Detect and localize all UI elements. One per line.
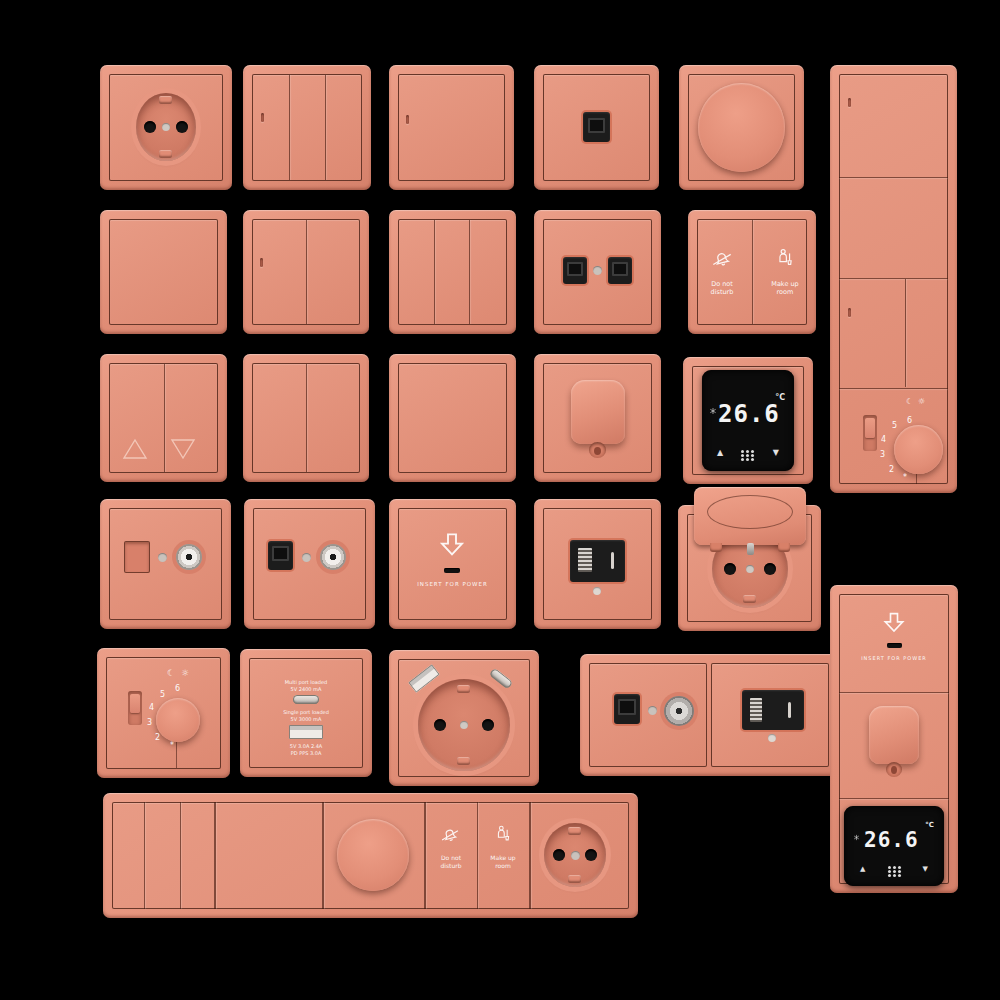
moon-icon: ☾ (167, 668, 175, 678)
bell-crossed-icon (711, 248, 733, 270)
tile-usb-outlet (534, 499, 661, 629)
tile-usb-charger: Multi port loaded5V 2400 mA Single port … (240, 649, 372, 777)
lid-hinge (778, 543, 790, 552)
schuko-socket (136, 93, 196, 161)
pin-hole (482, 719, 494, 731)
usb-a-port (578, 548, 592, 572)
center-dot (746, 565, 754, 573)
rj45-module (608, 257, 632, 284)
menu-dots-icon (888, 866, 891, 869)
rocker-face (398, 219, 507, 325)
rocker-divider (905, 279, 906, 387)
mode-slider-knob (865, 418, 875, 438)
thermostat-display: 26.6 °C ▲ ▼ (702, 370, 794, 471)
charger-text-top: Multi port loaded5V 2400 mA (240, 679, 372, 692)
rj45-module (614, 694, 640, 724)
dial-number: 2 (155, 733, 160, 742)
tile-rocker-2gang-indicator (243, 210, 369, 334)
tile-dimmer (679, 65, 804, 190)
insert-for-power-label: INSERT FOR POWER (389, 581, 516, 587)
cable-outlet-hole (886, 762, 902, 777)
rocker-face (252, 219, 360, 325)
cable-outlet-flap (869, 706, 919, 764)
blind-up-icon (122, 438, 148, 460)
housekeeping-icon (493, 824, 513, 844)
dial-number: 2 (889, 465, 894, 474)
rocker-divider (325, 75, 326, 180)
dial-pointer-line (176, 742, 177, 768)
rocker-face (398, 74, 505, 181)
usb-module (742, 690, 804, 730)
tile-keycard-switch: INSERT FOR POWER (389, 499, 516, 629)
housekeeping-icon (774, 247, 796, 269)
tile-cable-outlet (534, 354, 661, 482)
tile-rocker-single (389, 354, 516, 482)
panel-double-media (580, 654, 838, 776)
rj45-port (567, 262, 583, 276)
rocker-face (252, 74, 362, 181)
temperature-value: 26.6 (864, 828, 919, 852)
insert-for-power-label: INSERT FOR POWER (830, 655, 958, 661)
dial-number: 3 (147, 718, 152, 727)
thermostat-display: 26.6 °C ▲ ▼ (844, 806, 944, 886)
card-face (398, 508, 507, 620)
sun-icon: ☼ (181, 668, 189, 678)
section-divider (839, 798, 949, 799)
pin-hole (144, 121, 156, 133)
usb-a-port (289, 725, 323, 739)
tile-rocker-1gang-indicator (389, 65, 514, 190)
tile-data-tv-outlet (244, 499, 375, 629)
dial-number: 6 (907, 416, 912, 425)
grey-dot (302, 553, 311, 562)
indicator-dot (768, 734, 776, 742)
bell-crossed-icon (440, 825, 460, 845)
temperature-value: 26.6 (718, 400, 780, 428)
cable-outlet-hole (589, 442, 606, 458)
cable-outlet-flap (571, 380, 625, 444)
mode-slider-slot (128, 691, 142, 725)
grey-dot (571, 851, 580, 860)
product-collage: ☾ ☼ 6 5 4 3 2 * (0, 0, 1000, 1000)
section-divider (839, 388, 948, 389)
section-divider (839, 278, 948, 279)
rj45-port (618, 699, 636, 715)
tile-thermostat-digital: 26.6 °C ▲ ▼ (683, 357, 813, 484)
tile-rocker-3gang (243, 65, 371, 190)
schuko-socket (544, 823, 606, 887)
dial-number: 5 (160, 690, 165, 699)
thermostat-dial-knob (156, 698, 200, 742)
temperature-unit: °C (775, 393, 785, 402)
rocker-face (398, 363, 507, 473)
earth-clip (159, 96, 172, 104)
dimmer-knob (337, 819, 409, 891)
grey-dot (158, 553, 167, 562)
socket-flip-lid (694, 487, 806, 545)
card-slot (444, 568, 460, 573)
dial-number: 5 (892, 421, 897, 430)
thermostat-dial-knob (894, 425, 943, 474)
dial-pointer-line (916, 474, 917, 484)
section-divider (424, 802, 426, 909)
rj45-module (563, 257, 587, 284)
rocker-divider (306, 364, 307, 472)
lid-oval-recess (707, 495, 793, 529)
usb-module (570, 540, 625, 582)
dial-frost-mark: * (170, 741, 174, 750)
pin-hole (764, 563, 776, 575)
tile-schuko-usb-socket (389, 650, 539, 786)
usb-a-port (750, 698, 762, 722)
dnd-label: Do notdisturb (698, 280, 746, 296)
dial-number: 4 (149, 703, 154, 712)
grey-dot (648, 706, 657, 715)
pin-hole (434, 719, 446, 731)
temp-down-button: ▼ (923, 865, 928, 873)
coax-connector-metal (664, 696, 694, 726)
temperature-unit: °C (925, 821, 934, 829)
earth-clip (568, 827, 581, 835)
panel-vertical-4gang: ☾ ☼ 6 5 4 3 2 * (830, 65, 957, 493)
tile-schuko-socket (100, 65, 232, 190)
card-slot (887, 643, 902, 648)
usb-c-port (611, 552, 614, 569)
temp-up-button: ▲ (860, 865, 865, 873)
rocker-divider (164, 364, 165, 472)
coax-connector (320, 544, 346, 570)
indicator-slot (848, 308, 851, 317)
pin-hole (585, 849, 597, 861)
dimmer-knob (698, 83, 785, 172)
tile-data-outlet-double (534, 210, 661, 334)
rj45-port (612, 262, 628, 276)
insert-arrow-icon (880, 609, 908, 637)
rj45-port (272, 546, 289, 561)
section-divider (214, 802, 216, 909)
rocker-face (252, 363, 360, 473)
indicator-slot (848, 98, 851, 107)
charger-text-mid: Single port loaded5V 3000 mA (240, 709, 372, 722)
panel-vertical-3gang: INSERT FOR POWER 26.6 °C ▲ ▼ (830, 585, 958, 893)
button-divider (477, 802, 478, 909)
blind-down-icon (170, 438, 196, 460)
mode-slider-knob (130, 694, 140, 713)
insert-arrow-icon (436, 529, 468, 561)
rocker-face (109, 219, 218, 325)
rocker-divider (144, 802, 145, 909)
temp-up-button: ▲ (717, 448, 723, 457)
earth-clip (159, 150, 172, 158)
usb-c-port (293, 695, 319, 704)
pin-hole (724, 563, 736, 575)
indicator-slot (261, 113, 264, 122)
rocker-divider (306, 220, 307, 324)
rj45-port (588, 118, 605, 133)
blind-port-recess (124, 541, 150, 573)
tile-blind-switch (100, 354, 227, 482)
mode-slider-slot (863, 415, 877, 451)
temp-down-button: ▼ (773, 448, 779, 457)
indicator-slot (406, 115, 409, 124)
tile-rocker-blank (100, 210, 227, 334)
pin-hole (553, 849, 565, 861)
hinge-screw (747, 543, 754, 555)
schuko-socket (418, 679, 510, 771)
panel-horizontal-5gang: Do notdisturb Make uproom (103, 793, 638, 918)
rocker-divider (180, 802, 181, 909)
tile-rocker-3gang-full (389, 210, 516, 334)
rocker-divider (469, 220, 470, 324)
indicator-dot (593, 587, 601, 595)
earth-clip (743, 595, 756, 603)
dial-number: 3 (880, 450, 885, 459)
rocker-divider (289, 75, 290, 180)
earth-clip (457, 757, 470, 765)
usb-c-port (788, 702, 791, 718)
pin-hole (176, 121, 188, 133)
dial-frost-mark: * (903, 473, 907, 482)
button-face (697, 219, 807, 325)
charger-text-bottom: 5V 3.0A 2.4APD PPS 3.0A (240, 743, 372, 756)
center-dot (460, 721, 468, 729)
earth-clip (568, 875, 581, 883)
rj45-module (583, 112, 610, 142)
coax-connector (176, 544, 202, 570)
tile-data-outlet-single (534, 65, 659, 190)
mur-label: Make uproom (761, 280, 809, 296)
grey-dot (593, 266, 602, 275)
rj45-module (268, 541, 293, 570)
sun-icon: ☼ (918, 397, 925, 406)
tile-tv-outlet (100, 499, 231, 629)
moon-icon: ☾ (906, 397, 913, 406)
dnd-label: Do notdisturb (427, 854, 475, 869)
rocker-divider (434, 220, 435, 324)
center-dot (162, 123, 170, 131)
snowflake-icon (709, 407, 717, 415)
tile-thermostat-analog: ☾ ☼ 6 5 4 3 2 * (97, 648, 230, 778)
button-divider (752, 220, 753, 324)
mur-label: Make uproom (480, 854, 526, 869)
section-divider (839, 692, 949, 693)
dial-number: 4 (881, 435, 886, 444)
menu-dots-icon (741, 450, 744, 453)
snowflake-icon (853, 834, 860, 841)
dial-number: 6 (175, 684, 180, 693)
tile-dnd-mur-buttons: Do notdisturb Make uproom (688, 210, 816, 334)
section-divider (839, 177, 948, 178)
earth-clip (457, 685, 470, 693)
indicator-slot (260, 258, 263, 267)
tile-rocker-2gang (243, 354, 369, 482)
section-divider (529, 802, 531, 909)
lid-hinge (710, 543, 722, 552)
section-divider (322, 802, 324, 909)
